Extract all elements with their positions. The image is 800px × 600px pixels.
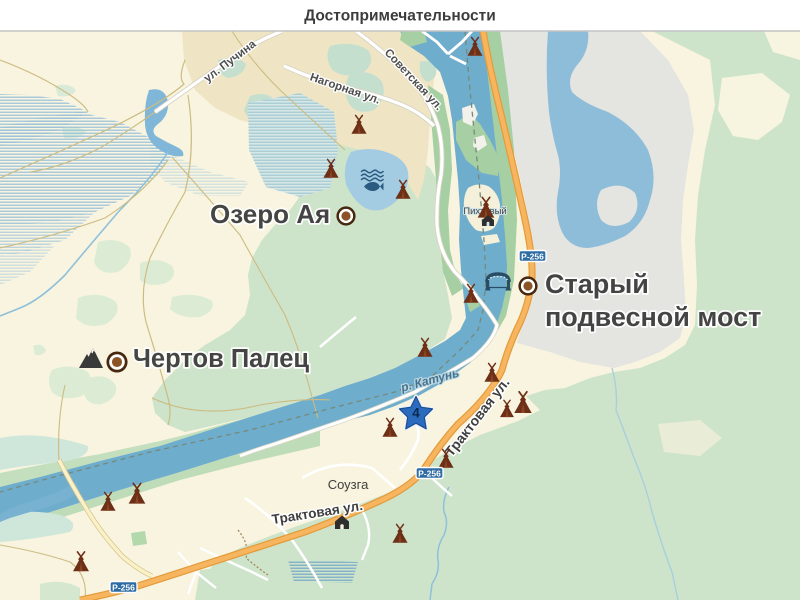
svg-text:подвесной мост: подвесной мост <box>545 302 761 332</box>
svg-text:Р-256: Р-256 <box>521 252 544 262</box>
svg-text:Чертов Палец: Чертов Палец <box>133 345 309 373</box>
svg-text:Озеро Ая: Озеро Ая <box>210 199 330 229</box>
svg-text:Соузга: Соузга <box>328 477 369 492</box>
svg-text:Р-256: Р-256 <box>418 469 441 479</box>
svg-text:Старый: Старый <box>545 269 649 299</box>
svg-text:Р-256: Р-256 <box>112 583 135 593</box>
svg-text:Достопримечательности: Достопримечательности <box>304 8 496 25</box>
svg-text:4: 4 <box>412 406 420 421</box>
